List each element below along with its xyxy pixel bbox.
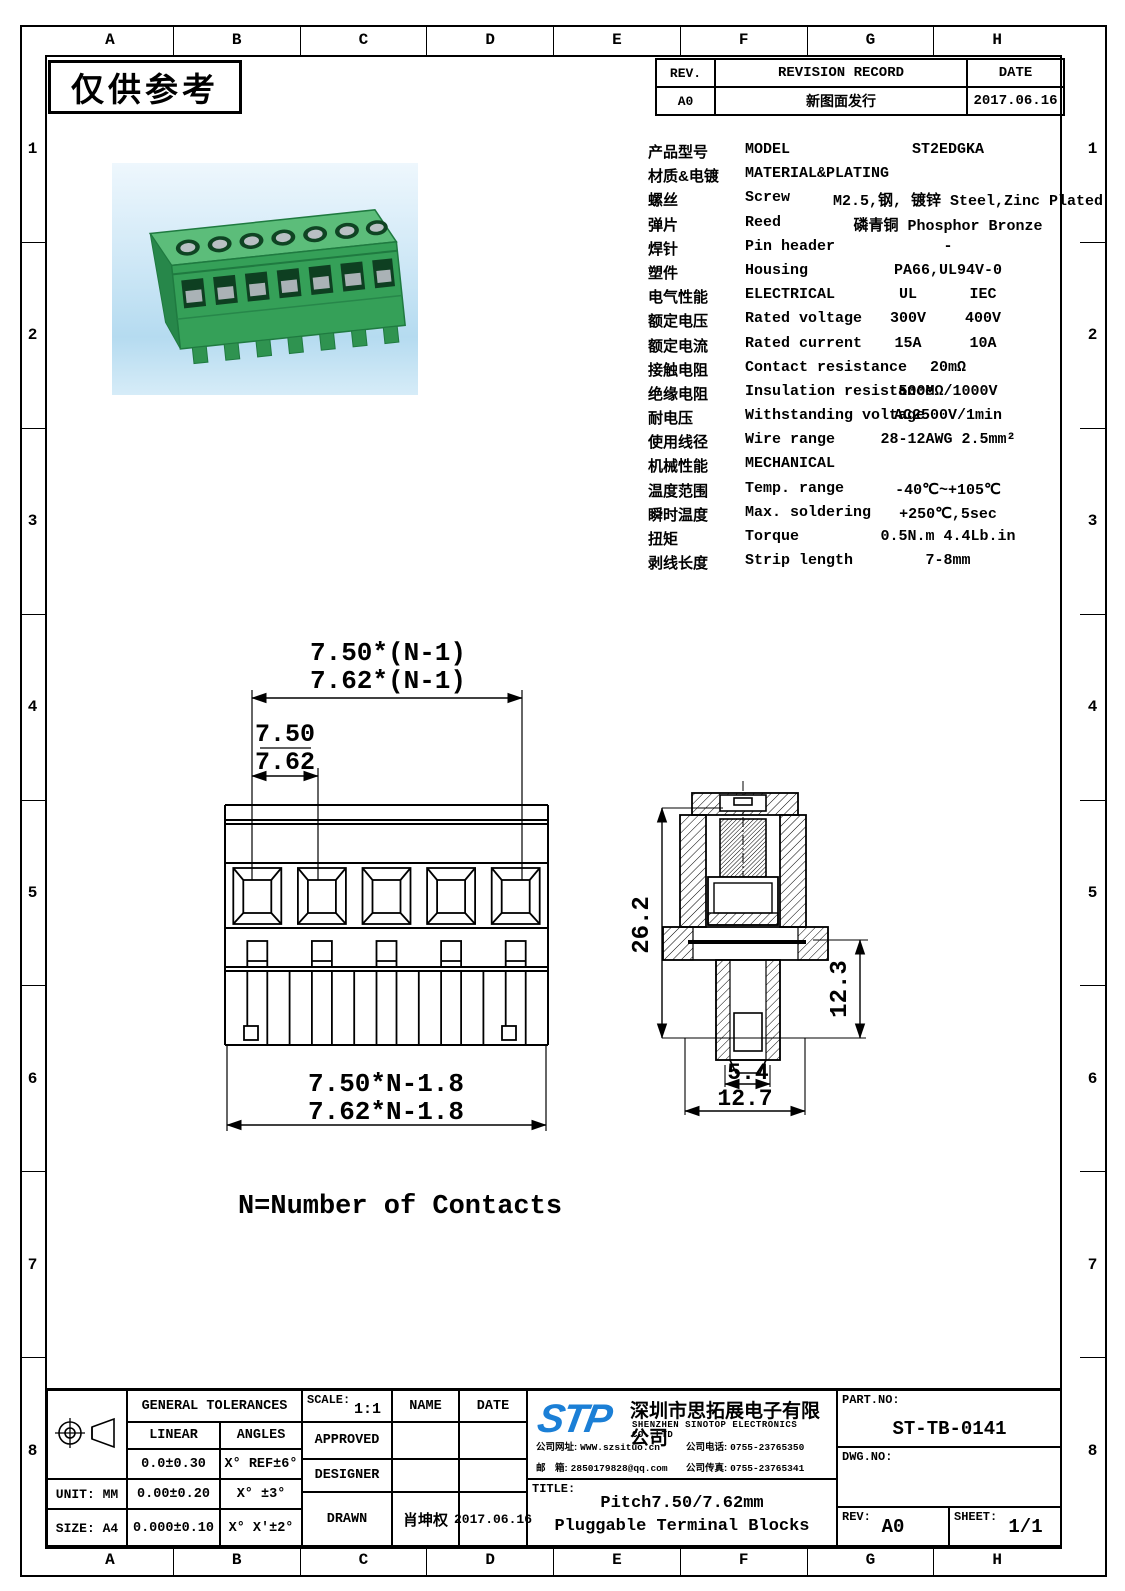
scale-value: 1:1 xyxy=(354,1401,381,1418)
zone-row-label: 8 xyxy=(20,1358,45,1543)
drawn-name: 肖坤权 xyxy=(392,1492,459,1547)
dim-width: 12.7 xyxy=(717,1086,772,1112)
contact-label: 邮 箱: xyxy=(536,1463,568,1474)
spec-table: 产品型号MODELST2EDGKA材质&电镀MATERIAL&PLATING螺丝… xyxy=(648,141,1060,576)
contact-value: WWW.szsituo.cn xyxy=(580,1442,660,1453)
spec-label-en: MODEL xyxy=(745,141,790,158)
zone-row-label: 1 xyxy=(1080,57,1105,243)
spec-row: 焊针Pin header- xyxy=(648,238,1060,262)
size-cell: SIZE: A4 xyxy=(47,1509,127,1547)
spec-row: 扭矩Torque0.5N.m 4.4Lb.in xyxy=(648,528,1060,552)
zone-row-label: 8 xyxy=(1080,1358,1105,1543)
spec-label-cn: 塑件 xyxy=(648,262,678,283)
drawn-date: 2017.06.16 xyxy=(459,1492,527,1547)
designer-date-cell xyxy=(459,1459,527,1492)
zone-col-label: A xyxy=(47,25,174,55)
company-cell: STP 深圳市思拓展电子有限公司 SHENZHEN SINOTOP ELECTR… xyxy=(527,1390,837,1479)
zone-col-label: E xyxy=(554,25,681,55)
contact-value: 0755-23765350 xyxy=(730,1442,804,1453)
contact-label: 公司传真: xyxy=(686,1463,727,1474)
spec-label-cn: 使用线径 xyxy=(648,431,708,452)
rev-label: REV: xyxy=(842,1510,871,1524)
spec-row: 温度范围Temp. range-40℃~+105℃ xyxy=(648,480,1060,504)
spec-label-cn: 额定电流 xyxy=(648,335,708,356)
zone-col-label: C xyxy=(301,25,428,55)
linear-header: LINEAR xyxy=(127,1422,220,1449)
title-line2: Pluggable Terminal Blocks xyxy=(528,1516,836,1539)
spec-label-en: Rated voltage xyxy=(745,310,862,327)
dim-total-762: 7.62*N-1.8 xyxy=(308,1097,464,1127)
zone-col-label: D xyxy=(427,25,554,55)
spec-label-cn: 耐电压 xyxy=(648,407,693,428)
tol-linear-1: 0.0±0.30 xyxy=(127,1449,220,1479)
revision-value-record: 新图面发行 xyxy=(716,88,968,114)
spec-label-cn: 弹片 xyxy=(648,214,678,235)
spec-row: 使用线径Wire range28-12AWG 2.5mm² xyxy=(648,431,1060,455)
part-no-cell: PART.NO: ST-TB-0141 xyxy=(837,1390,1062,1447)
zone-row-label: 1 xyxy=(20,57,45,243)
zone-col-label: H xyxy=(934,1545,1060,1575)
contact-value: 2850179828@qq.com xyxy=(571,1463,668,1474)
zone-numbers-left: 12345678 xyxy=(20,57,45,1543)
approved-label: APPROVED xyxy=(302,1422,392,1459)
tol-angle-1: X° REF±6° xyxy=(220,1449,302,1479)
zone-col-label: F xyxy=(681,1545,808,1575)
spec-value: M2.5,钢, 镀锌 Steel,Zinc Plated xyxy=(833,189,1063,210)
product-photo xyxy=(112,163,418,395)
spec-value: -40℃~+105℃ xyxy=(833,480,1063,499)
company-contacts: 公司网址:WWW.szsituo.cn公司电话:0755-23765350邮 箱… xyxy=(536,1435,832,1477)
spec-value: 500MΩ/1000V xyxy=(833,383,1063,400)
spec-label-cn: 材质&电镀 xyxy=(648,165,719,186)
tol-angle-3: X° X'±2° xyxy=(220,1509,302,1547)
zone-row-label: 6 xyxy=(1080,986,1105,1172)
spec-label-en: Torque xyxy=(745,528,799,545)
dwg-no-cell: DWG.NO: xyxy=(837,1447,1062,1507)
terminal-windows xyxy=(233,868,539,924)
spec-label-cn: 绝缘电阻 xyxy=(648,383,708,404)
title-line1: Pitch7.50/7.62mm xyxy=(528,1493,836,1516)
projection-symbol-cell xyxy=(47,1390,127,1479)
angles-header: ANGLES xyxy=(220,1422,302,1449)
name-header: NAME xyxy=(392,1390,459,1422)
spec-label-cn: 接触电阻 xyxy=(648,359,708,380)
zone-row-label: 4 xyxy=(20,615,45,801)
zone-col-label: B xyxy=(174,1545,301,1575)
spec-value: PA66,UL94V-0 xyxy=(833,262,1063,279)
zone-col-label: D xyxy=(427,1545,554,1575)
spec-value-iec: IEC xyxy=(938,286,1028,303)
revision-table: REV. REVISION RECORD DATE A0 新图面发行 2017.… xyxy=(655,58,1065,116)
spec-row: 产品型号MODELST2EDGKA xyxy=(648,141,1060,165)
spec-label-en: Pin header xyxy=(745,238,835,255)
spec-label-en: ELECTRICAL xyxy=(745,286,835,303)
part-no-label: PART.NO: xyxy=(842,1393,900,1407)
spec-value: 7-8mm xyxy=(833,552,1063,569)
revision-value-rev: A0 xyxy=(657,88,716,114)
zone-letters-top: ABCDEFGH xyxy=(47,25,1060,55)
zone-row-label: 5 xyxy=(1080,801,1105,987)
zone-row-label: 5 xyxy=(20,801,45,987)
zone-row-label: 2 xyxy=(1080,243,1105,429)
spec-label-en: Housing xyxy=(745,262,808,279)
zone-row-label: 7 xyxy=(1080,1172,1105,1358)
spec-value: ST2EDGKA xyxy=(833,141,1063,158)
dim-pitch-750: 7.50 xyxy=(255,720,315,749)
unit-cell: UNIT: MM xyxy=(47,1479,127,1509)
spec-label-cn: 温度范围 xyxy=(648,480,708,501)
zone-row-label: 2 xyxy=(20,243,45,429)
spec-row: 绝缘电阻Insulation resistance500MΩ/1000V xyxy=(648,383,1060,407)
title-cell: TITLE: Pitch7.50/7.62mm Pluggable Termin… xyxy=(527,1479,837,1547)
contact-value: 0755-23765341 xyxy=(730,1463,804,1474)
dim-lower: 12.3 xyxy=(827,960,854,1018)
spec-row: 接触电阻Contact resistance20mΩ xyxy=(648,359,1060,383)
spec-label-en: Reed xyxy=(745,214,781,231)
spec-label-cn: 螺丝 xyxy=(648,189,678,210)
dim-slot: 5.4 xyxy=(727,1060,769,1086)
dwg-no-label: DWG.NO: xyxy=(842,1450,892,1464)
side-view-drawing: 26.2 12.3 5.4 12.7 xyxy=(628,775,883,1130)
revision-header-row: REV. REVISION RECORD DATE xyxy=(657,60,1063,88)
spec-value-iec: 400V xyxy=(938,310,1028,327)
spec-label-cn: 剥线长度 xyxy=(648,552,708,573)
tol-linear-3: 0.000±0.10 xyxy=(127,1509,220,1547)
dim-height: 26.2 xyxy=(629,896,656,954)
contact-label: 公司电话: xyxy=(686,1442,727,1453)
tol-angle-2: X° ±3° xyxy=(220,1479,302,1509)
revision-value-date: 2017.06.16 xyxy=(968,88,1063,114)
zone-col-label: F xyxy=(681,25,808,55)
spec-row: 瞬时温度Max. soldering+250℃,5sec xyxy=(648,504,1060,528)
spec-row: 耐电压Withstanding voltageAC2500V/1min xyxy=(648,407,1060,431)
spec-row: 额定电流Rated current15A10A xyxy=(648,335,1060,359)
zone-col-label: G xyxy=(808,1545,935,1575)
zone-row-label: 3 xyxy=(20,429,45,615)
zone-col-label: G xyxy=(808,25,935,55)
sheet-label: SHEET: xyxy=(954,1510,997,1524)
spec-label-en: MATERIAL&PLATING xyxy=(745,165,889,182)
contacts-note: N=Number of Contacts xyxy=(230,1192,570,1222)
scale-cell: SCALE: 1:1 xyxy=(302,1390,392,1422)
zone-col-label: B xyxy=(174,25,301,55)
terminal-block-illustration xyxy=(112,163,418,395)
spec-value-iec: 10A xyxy=(938,335,1028,352)
spec-label-cn: 额定电压 xyxy=(648,310,708,331)
rev-cell: REV: A0 xyxy=(837,1507,949,1547)
spec-label-en: MECHANICAL xyxy=(745,455,835,472)
revision-col-rev: REV. xyxy=(657,60,716,86)
spec-row: 螺丝ScrewM2.5,钢, 镀锌 Steel,Zinc Plated xyxy=(648,189,1060,213)
spec-label-cn: 焊针 xyxy=(648,238,678,259)
front-view-drawing: 7.50*(N-1) 7.62*(N-1) 7.50 7.62 xyxy=(215,628,560,1133)
spec-label-cn: 机械性能 xyxy=(648,455,708,476)
drawn-label: DRAWN xyxy=(302,1492,392,1547)
revision-col-date: DATE xyxy=(968,60,1063,86)
zone-col-label: E xyxy=(554,1545,681,1575)
contact-item: 公司传真:0755-23765341 xyxy=(686,1460,832,1474)
spec-row: 机械性能MECHANICAL xyxy=(648,455,1060,479)
contact-item: 公司电话:0755-23765350 xyxy=(686,1439,832,1453)
spec-row: 剥线长度Strip length7-8mm xyxy=(648,552,1060,576)
contact-label: 公司网址: xyxy=(536,1442,577,1453)
spec-label-en: Wire range xyxy=(745,431,835,448)
spec-label-cn: 扭矩 xyxy=(648,528,678,549)
revision-data-row: A0 新图面发行 2017.06.16 xyxy=(657,88,1063,114)
zone-col-label: A xyxy=(47,1545,174,1575)
zone-row-label: 6 xyxy=(20,986,45,1172)
spec-value: 0.5N.m 4.4Lb.in xyxy=(833,528,1063,545)
approved-date-cell xyxy=(459,1422,527,1459)
third-angle-projection-icon xyxy=(48,1391,124,1475)
zone-row-label: 4 xyxy=(1080,615,1105,801)
spec-row: 额定电压Rated voltage300V400V xyxy=(648,310,1060,334)
title-label: TITLE: xyxy=(532,1482,575,1496)
general-tolerances-header: GENERAL TOLERANCES xyxy=(127,1390,302,1422)
spec-label-en: Temp. range xyxy=(745,480,844,497)
spec-label-en: Rated current xyxy=(745,335,862,352)
zone-col-label: C xyxy=(301,1545,428,1575)
reference-only-watermark: 仅供参考 xyxy=(48,60,242,114)
dim-pitch-762: 7.62 xyxy=(255,748,315,777)
date-header: DATE xyxy=(459,1390,527,1422)
dim-span-750: 7.50*(N-1) xyxy=(310,638,466,668)
title-block: UNIT: MM SIZE: A4 GENERAL TOLERANCES LIN… xyxy=(45,1388,1062,1549)
revision-col-record: REVISION RECORD xyxy=(716,60,968,86)
zone-letters-bottom: ABCDEFGH xyxy=(47,1545,1060,1575)
zone-numbers-right: 12345678 xyxy=(1080,57,1105,1543)
zone-col-label: H xyxy=(934,25,1060,55)
spec-label-en: Screw xyxy=(745,189,790,206)
spec-value: AC2500V/1min xyxy=(833,407,1063,424)
contact-item: 邮 箱:2850179828@qq.com xyxy=(536,1460,686,1474)
drawing-sheet: ABCDEFGH ABCDEFGH 12345678 12345678 仅供参考… xyxy=(0,0,1125,1591)
spec-label-cn: 电气性能 xyxy=(648,286,708,307)
zone-row-label: 3 xyxy=(1080,429,1105,615)
spec-label-cn: 瞬时温度 xyxy=(648,504,708,525)
spec-row: 电气性能ELECTRICALULIEC xyxy=(648,286,1060,310)
spec-value: - xyxy=(833,238,1063,255)
dim-span-762: 7.62*(N-1) xyxy=(310,666,466,696)
zone-row-label: 7 xyxy=(20,1172,45,1358)
tol-linear-2: 0.00±0.20 xyxy=(127,1479,220,1509)
contact-item: 公司网址:WWW.szsituo.cn xyxy=(536,1439,686,1453)
spec-row: 塑件HousingPA66,UL94V-0 xyxy=(648,262,1060,286)
spec-row: 弹片Reed磷青铜 Phosphor Bronze xyxy=(648,214,1060,238)
dim-total-750: 7.50*N-1.8 xyxy=(308,1069,464,1099)
approved-name-cell xyxy=(392,1422,459,1459)
spec-value: 20mΩ xyxy=(833,359,1063,376)
designer-label: DESIGNER xyxy=(302,1459,392,1492)
designer-name-cell xyxy=(392,1459,459,1492)
spec-value: +250℃,5sec xyxy=(833,504,1063,523)
spec-row: 材质&电镀MATERIAL&PLATING xyxy=(648,165,1060,189)
sheet-cell: SHEET: 1/1 xyxy=(949,1507,1062,1547)
spec-value: 28-12AWG 2.5mm² xyxy=(833,431,1063,448)
scale-label: SCALE: xyxy=(307,1393,350,1407)
spec-value: 磷青铜 Phosphor Bronze xyxy=(833,214,1063,235)
mounting-pegs xyxy=(244,941,526,1045)
spec-label-cn: 产品型号 xyxy=(648,141,708,162)
